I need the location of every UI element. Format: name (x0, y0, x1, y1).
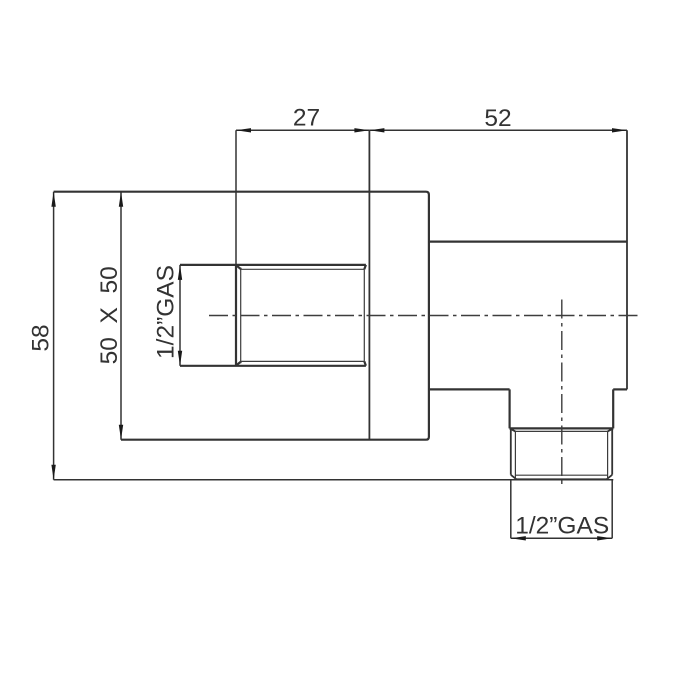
svg-text:50 X 50: 50 X 50 (96, 266, 123, 364)
svg-text:58: 58 (28, 324, 55, 351)
svg-text:52: 52 (484, 105, 511, 132)
svg-text:1/2”GAS: 1/2”GAS (153, 265, 180, 359)
svg-text:27: 27 (293, 105, 320, 132)
svg-text:1/2”GAS: 1/2”GAS (515, 513, 609, 540)
